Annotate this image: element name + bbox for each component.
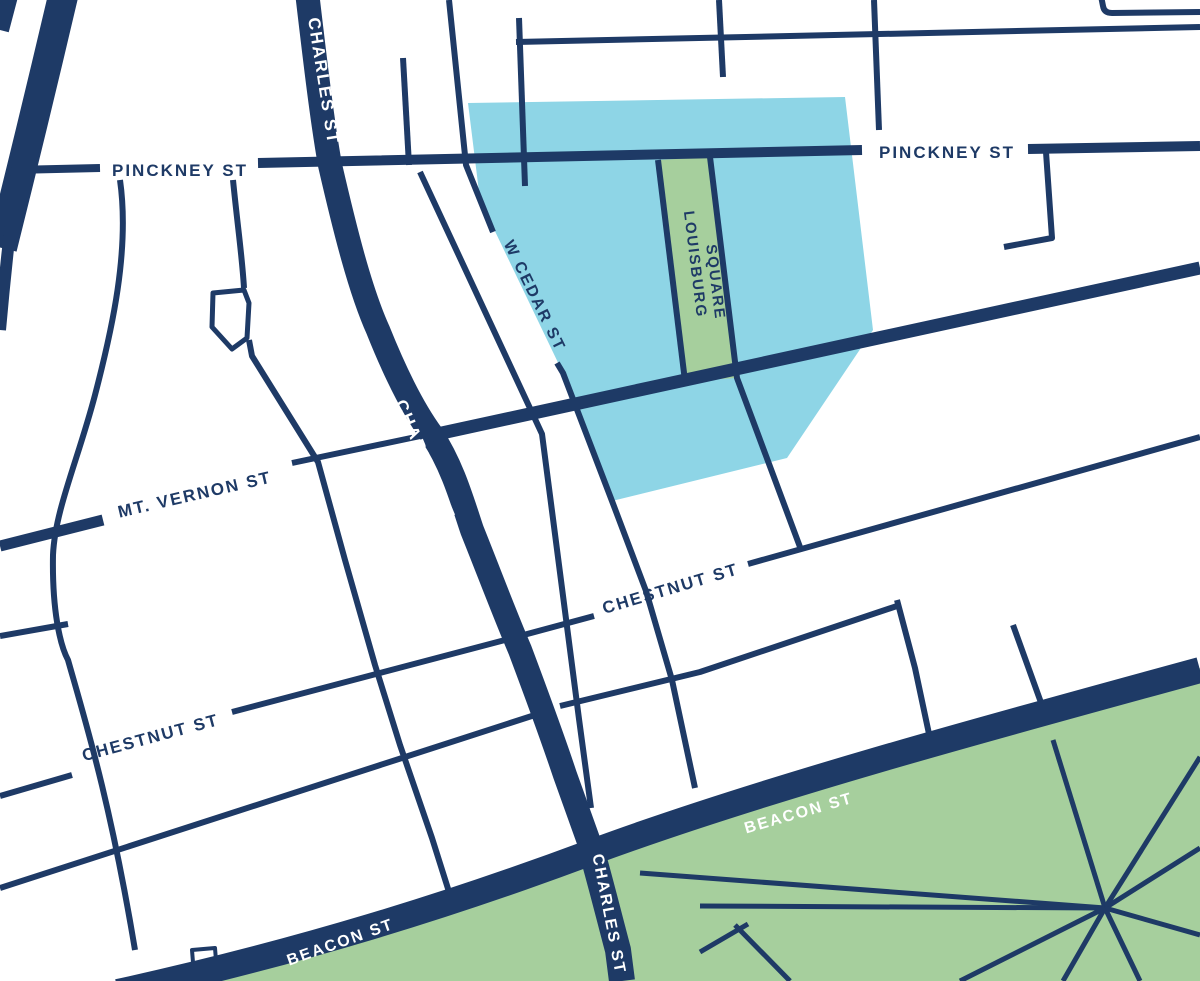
pinckney-st-west-label: PINCKNEY ST <box>112 161 248 180</box>
north-vertical-1 <box>719 0 723 77</box>
embankment-road-1 <box>0 0 10 30</box>
map-canvas: PINCKNEY ST PINCKNEY ST CHARLES ST CHARL… <box>0 0 1200 981</box>
beacon-hill-map: PINCKNEY ST PINCKNEY ST CHARLES ST CHARL… <box>0 0 1200 981</box>
pinckney-st-east-label: PINCKNEY ST <box>879 143 1015 162</box>
